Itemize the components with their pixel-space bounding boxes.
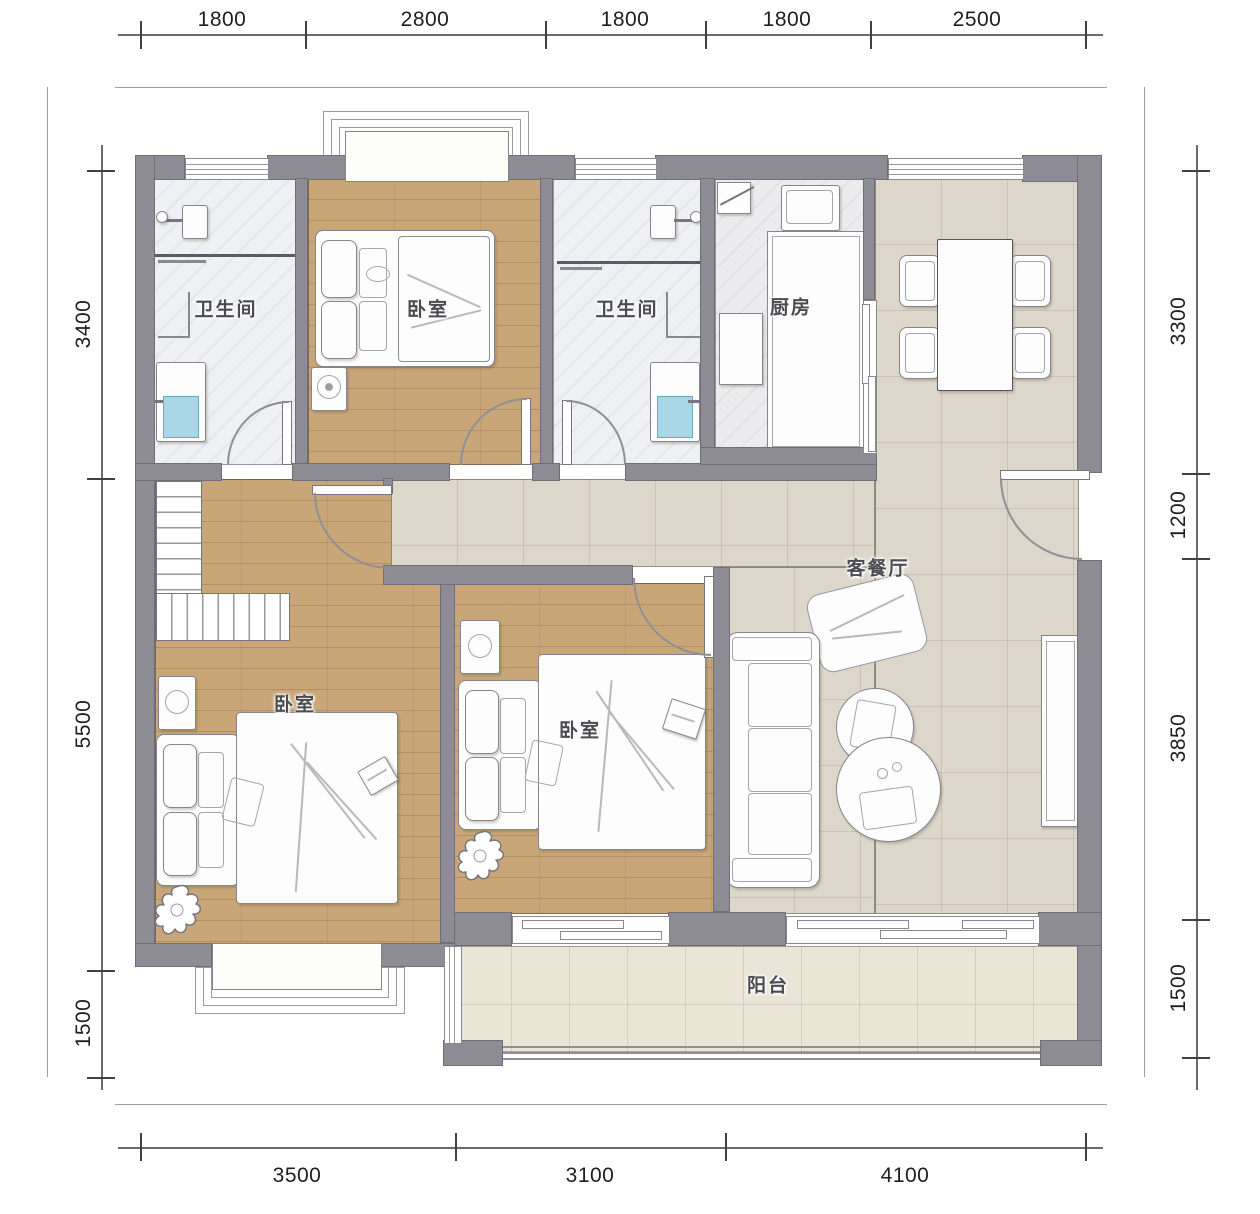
room-label-bedroom-mid: 卧室 [559, 716, 601, 743]
shower-corner [666, 336, 700, 338]
window [185, 158, 269, 180]
pillow [500, 698, 526, 754]
wardrobe-grid [156, 481, 202, 595]
dimension-tick [305, 21, 307, 49]
window-panel [522, 920, 624, 929]
faucet-knob [156, 211, 168, 223]
pillow [198, 752, 224, 808]
pillow [359, 301, 387, 351]
wall [135, 463, 222, 481]
sofa-arm [732, 637, 812, 661]
dining-chair-seat [1015, 261, 1045, 301]
dimension-label: 3400 [72, 279, 96, 369]
dimension-tick [1182, 170, 1210, 172]
dining-chair-seat [905, 333, 935, 373]
pillow [198, 812, 224, 868]
dimension-tick [1085, 1133, 1087, 1161]
shower-partition [155, 254, 297, 257]
floor-plan: 卫生间 卧室 卫生间 厨房 客餐厅 卧室 卧室 阳台 1800 2800 180… [0, 0, 1260, 1214]
dimension-label: 5500 [72, 679, 96, 769]
dimension-label: 3850 [1167, 693, 1191, 783]
sofa-cushion [748, 663, 812, 727]
dining-table [937, 239, 1013, 391]
dimension-tick [1182, 919, 1210, 921]
sofa-cushion [748, 793, 812, 855]
wardrobe-grid [156, 593, 290, 641]
window [888, 158, 1024, 180]
dimension-tick [705, 21, 707, 49]
dimension-tick [87, 170, 115, 172]
pillow [321, 301, 357, 359]
dining-chair-seat [1015, 333, 1045, 373]
sliding-door-panel [962, 920, 1034, 929]
room-label-bedroom-top: 卧室 [407, 295, 449, 322]
window [575, 158, 657, 180]
dimension-line [1196, 145, 1198, 1090]
balcony-post [1040, 1040, 1102, 1066]
railing [503, 1052, 1040, 1054]
dimension-tick [87, 1077, 115, 1079]
nightstand-lamp [468, 634, 492, 658]
wall [135, 943, 212, 967]
wall [700, 447, 877, 465]
dimension-line [118, 1147, 1103, 1149]
dimension-label: 1800 [177, 8, 267, 32]
sliding-door-panel [868, 376, 876, 452]
wall [383, 565, 633, 585]
dimension-label: 1200 [1167, 470, 1191, 560]
window [444, 946, 462, 1044]
dimension-label: 3500 [252, 1164, 342, 1188]
room-label-bathroom-2: 卫生间 [595, 295, 658, 322]
dimension-label: 1500 [72, 978, 96, 1068]
dimension-label: 3300 [1167, 276, 1191, 366]
pillow [163, 812, 197, 876]
pillow [465, 757, 499, 821]
wall [135, 155, 155, 965]
dimension-tick [140, 1133, 142, 1161]
dimension-label: 4100 [860, 1164, 950, 1188]
sliding-door-panel [862, 304, 870, 384]
wall [540, 178, 553, 465]
boundary-line [115, 87, 1107, 88]
wall [655, 155, 888, 180]
dimension-tick [725, 1133, 727, 1161]
plant [153, 882, 205, 940]
nightstand-lamp [165, 690, 189, 714]
room-label-kitchen: 厨房 [770, 293, 812, 320]
coffee-table-dot [877, 768, 888, 779]
dimension-tick [1182, 1057, 1210, 1059]
shower-corner [188, 292, 190, 338]
dimension-tick [140, 21, 142, 49]
dimension-tick [87, 478, 115, 480]
wall [507, 155, 575, 180]
wall [532, 463, 560, 481]
hallway-floor [391, 479, 875, 567]
dimension-label: 2800 [380, 8, 470, 32]
washing-machine-door [163, 396, 199, 438]
window-panel [560, 931, 662, 940]
shower-corner [158, 336, 190, 338]
kitchen-counter [719, 313, 763, 385]
dimension-tick [545, 21, 547, 49]
nightstand-lamp [325, 383, 333, 391]
dimension-label: 3100 [545, 1164, 635, 1188]
pillow [163, 744, 197, 808]
boundary-line [47, 87, 48, 1077]
railing [503, 1046, 1040, 1048]
wall [1077, 155, 1102, 473]
wall [295, 178, 308, 465]
dimension-label: 1800 [580, 8, 670, 32]
washbasin [650, 205, 676, 239]
bay-window [345, 131, 509, 182]
boundary-line [115, 1104, 1107, 1105]
fridge-line [786, 190, 833, 224]
sliding-door-panel [880, 930, 1007, 939]
shower-partition [557, 261, 700, 264]
dimension-tick [1085, 21, 1087, 49]
dimension-label: 2500 [932, 8, 1022, 32]
partition-handle [560, 267, 602, 270]
room-label-living-dining: 客餐厅 [846, 554, 909, 581]
bay-window [212, 943, 382, 990]
tv-cabinet-line [1046, 641, 1075, 821]
pillow [500, 757, 526, 813]
wall [713, 567, 730, 912]
dimension-label: 1800 [742, 8, 832, 32]
partition-handle [158, 260, 206, 263]
wall [1038, 912, 1102, 946]
boundary-line [1144, 87, 1145, 1077]
sliding-door-panel [797, 920, 909, 929]
coffee-table-tray [859, 785, 918, 830]
room-label-bedroom-left: 卧室 [274, 690, 316, 717]
pillow [321, 240, 357, 298]
dimension-line [101, 145, 103, 1090]
double-bed [236, 712, 398, 904]
dimension-tick [87, 970, 115, 972]
plant [456, 828, 508, 886]
wall [267, 155, 347, 180]
dimension-line [118, 34, 1103, 36]
washbasin [182, 205, 208, 239]
dining-chair-seat [905, 261, 935, 301]
wall [1077, 560, 1102, 1052]
pillow [465, 690, 499, 754]
wall [625, 463, 877, 481]
balcony-floor [453, 946, 1079, 1052]
railing [503, 1058, 1040, 1060]
dimension-label: 1500 [1167, 943, 1191, 1033]
wall [668, 912, 786, 946]
room-label-bathroom-1: 卫生间 [194, 295, 257, 322]
bed-decor [366, 266, 390, 282]
coffee-table-dot [892, 762, 902, 772]
wall [292, 463, 450, 481]
kitchen-counter-line [772, 236, 860, 447]
wall [863, 178, 875, 300]
sofa-arm [732, 858, 812, 882]
wall [440, 567, 455, 943]
room-label-balcony: 阳台 [747, 971, 789, 998]
dimension-tick [870, 21, 872, 49]
dimension-tick [455, 1133, 457, 1161]
shower-corner [666, 292, 668, 338]
sofa-cushion [748, 728, 812, 792]
double-bed [538, 654, 706, 850]
wall [700, 178, 715, 465]
